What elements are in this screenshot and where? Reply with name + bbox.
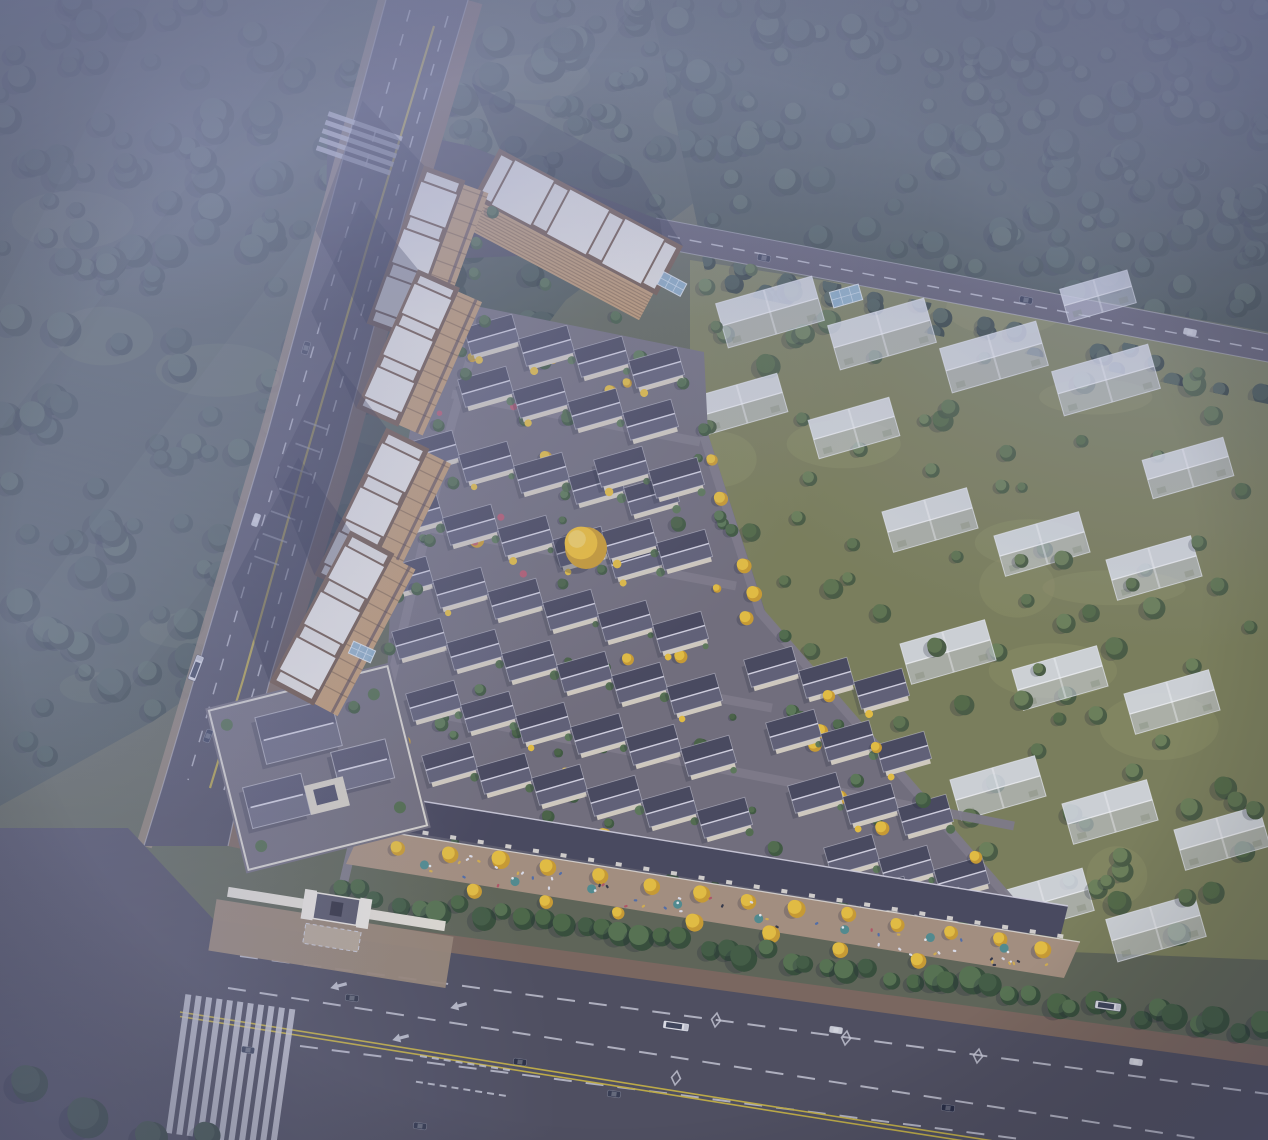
- masterplan-aerial-rendering: [0, 0, 1268, 1140]
- aerial-rendering: [0, 0, 1268, 1140]
- fog-overlays: [0, 0, 1268, 1140]
